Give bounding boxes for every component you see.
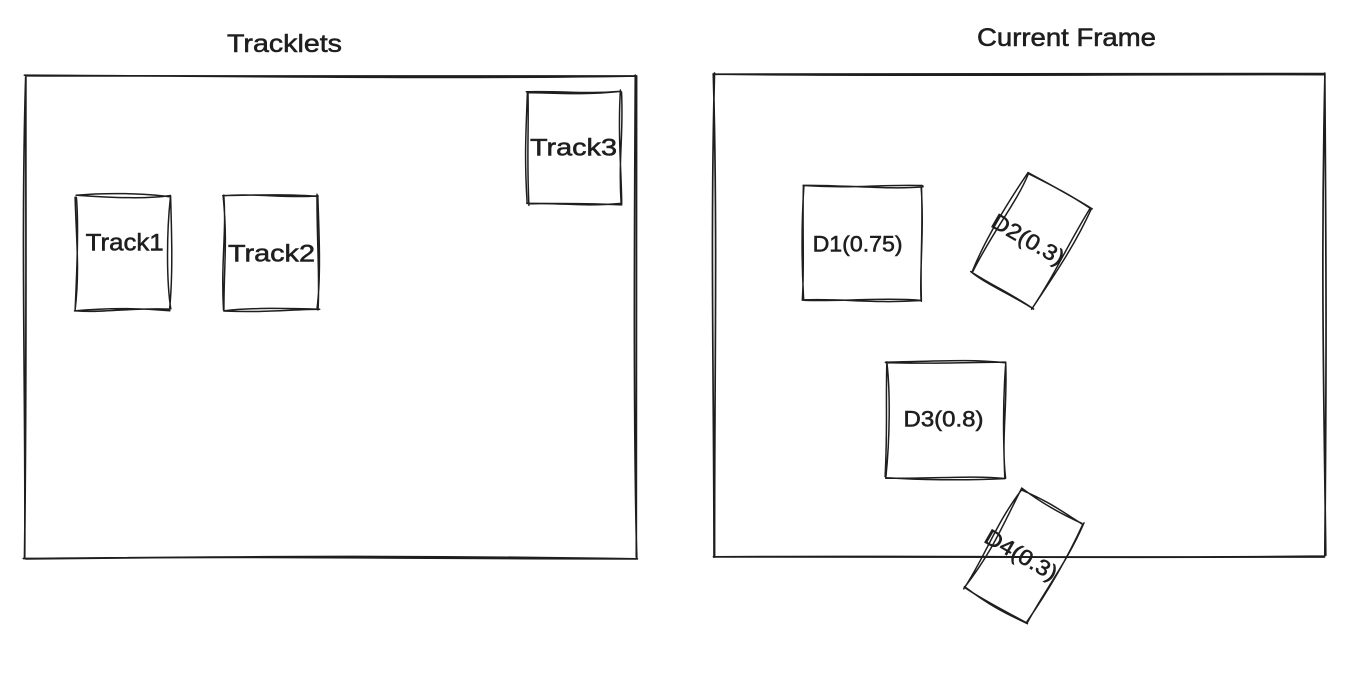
- svg-text:D1(0.75): D1(0.75): [813, 232, 903, 257]
- svg-text:D3(0.8): D3(0.8): [904, 407, 984, 432]
- svg-text:D4(0.3): D4(0.3): [980, 524, 1062, 586]
- svg-text:D2(0.3): D2(0.3): [987, 209, 1069, 271]
- svg-text:Tracklets: Tracklets: [227, 30, 342, 58]
- svg-text:Track3: Track3: [530, 135, 617, 162]
- svg-text:Track1: Track1: [86, 230, 164, 257]
- svg-text:Current Frame: Current Frame: [977, 24, 1156, 52]
- svg-text:Track2: Track2: [228, 241, 315, 268]
